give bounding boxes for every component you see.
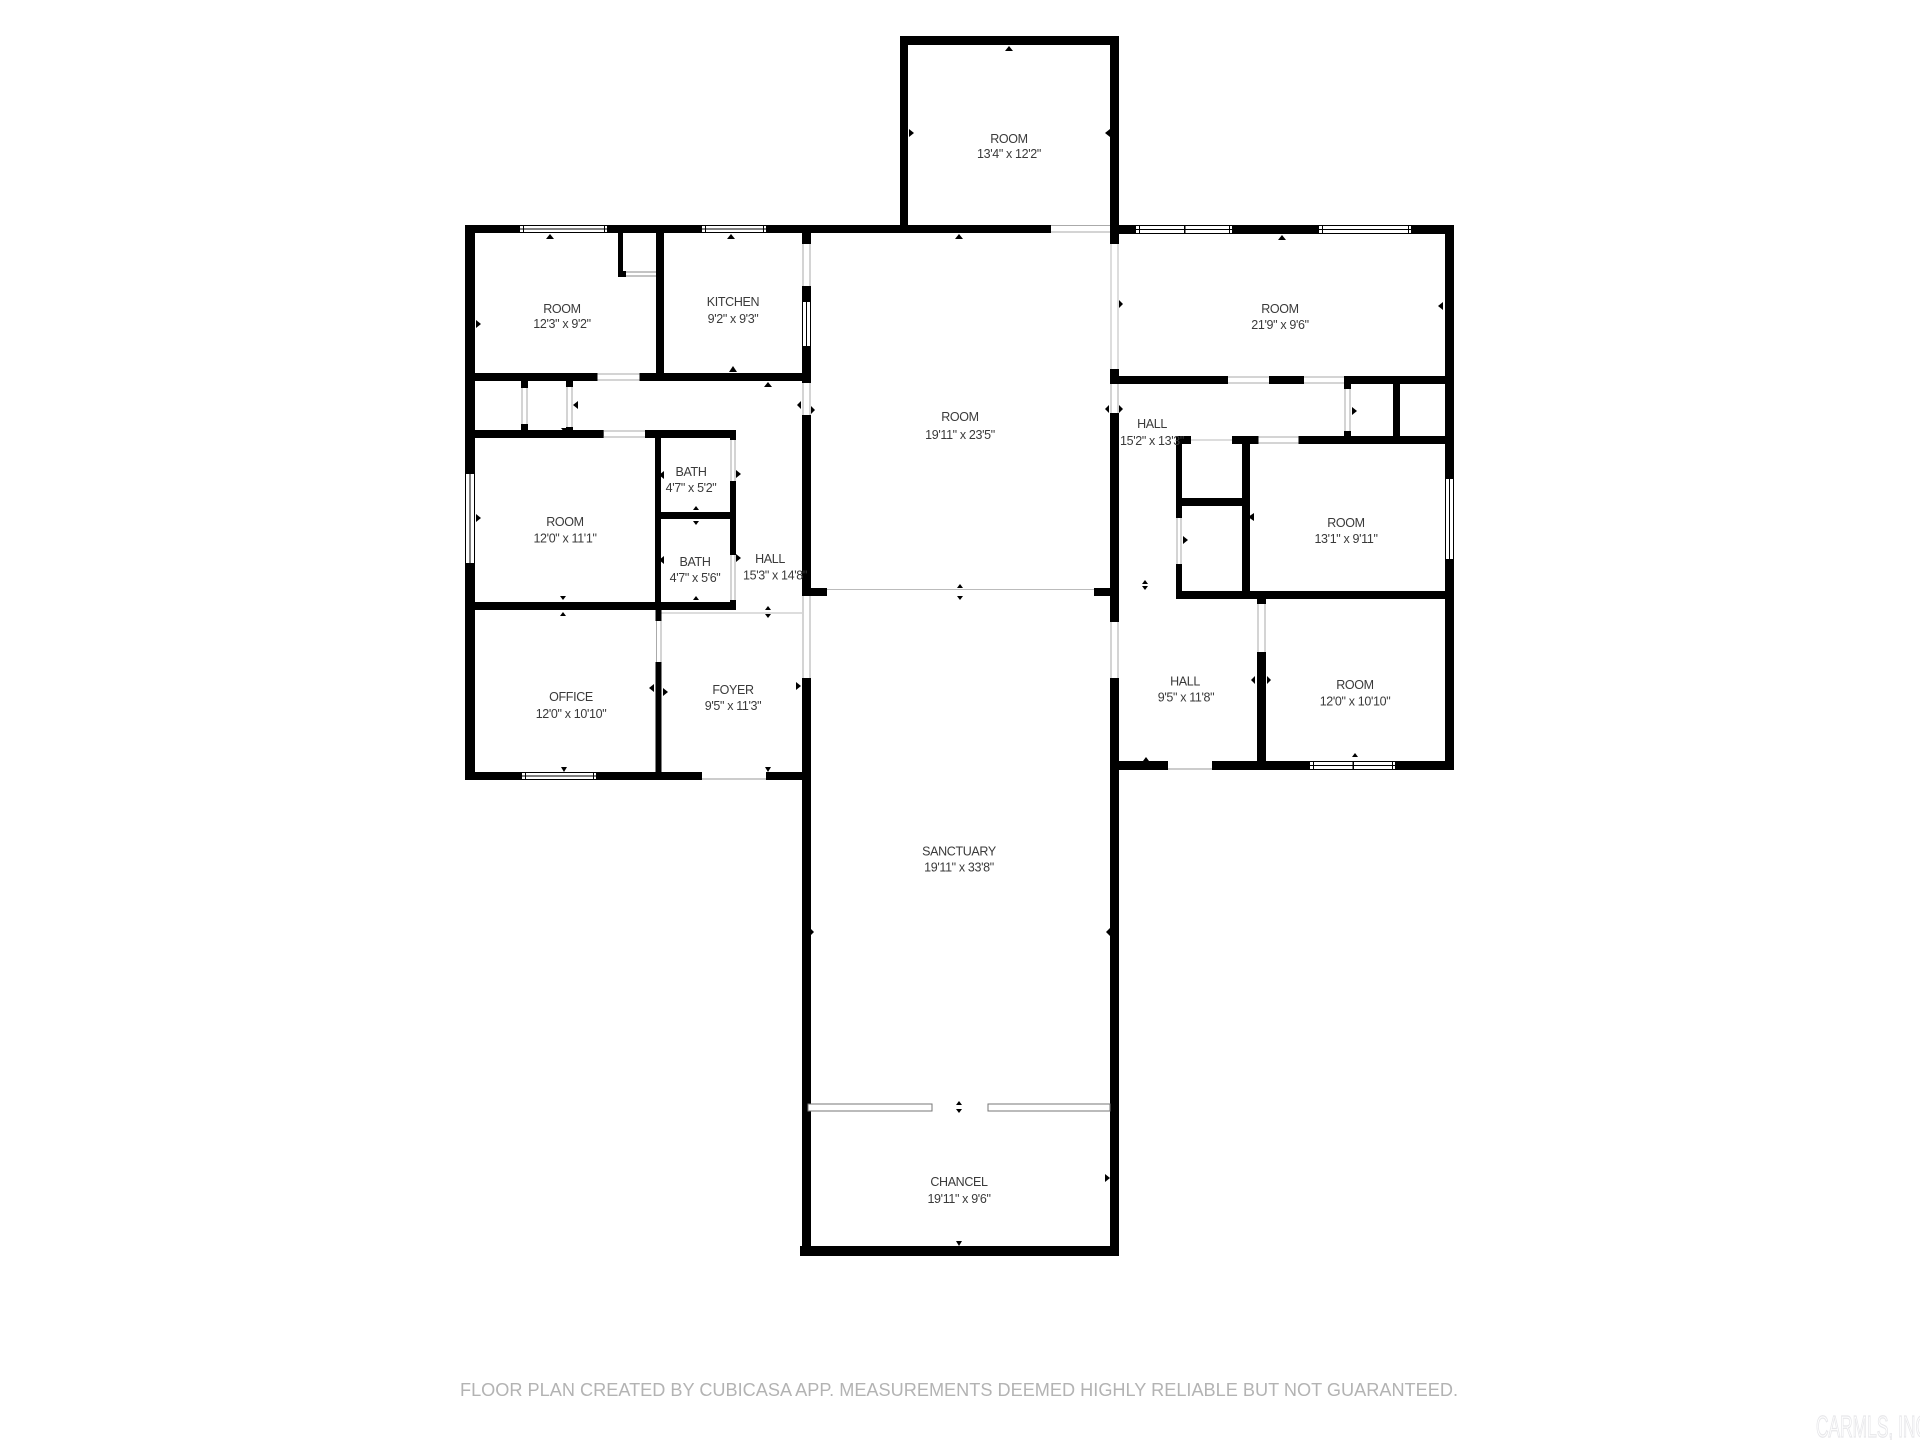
svg-text:KITCHEN: KITCHEN [707, 295, 760, 309]
svg-text:FOYER: FOYER [712, 683, 754, 697]
svg-text:12'0" x 11'1": 12'0" x 11'1" [533, 532, 596, 546]
svg-text:OFFICE: OFFICE [549, 690, 593, 704]
svg-text:ROOM: ROOM [1336, 678, 1374, 692]
svg-text:BATH: BATH [679, 555, 710, 569]
svg-text:12'3" x 9'2": 12'3" x 9'2" [533, 317, 590, 331]
svg-text:ROOM: ROOM [941, 410, 979, 424]
svg-text:12'0" x 10'10": 12'0" x 10'10" [536, 707, 607, 721]
svg-text:13'4" x 12'2": 13'4" x 12'2" [977, 147, 1041, 161]
svg-text:CHANCEL: CHANCEL [930, 1175, 988, 1189]
svg-text:HALL: HALL [755, 552, 785, 566]
svg-text:19'11" x 9'6": 19'11" x 9'6" [927, 1192, 990, 1206]
svg-text:15'3" x 14'8": 15'3" x 14'8" [743, 569, 807, 583]
svg-text:9'5" x 11'8": 9'5" x 11'8" [1158, 691, 1214, 705]
svg-text:19'11" x 23'5": 19'11" x 23'5" [925, 428, 995, 442]
svg-text:21'9" x 9'6": 21'9" x 9'6" [1251, 318, 1308, 332]
svg-text:HALL: HALL [1137, 417, 1167, 431]
svg-text:HALL: HALL [1170, 675, 1200, 689]
svg-text:BATH: BATH [675, 465, 706, 479]
svg-text:SANCTUARY: SANCTUARY [922, 845, 997, 859]
svg-text:ROOM: ROOM [543, 302, 581, 316]
svg-text:15'2" x 13'3": 15'2" x 13'3" [1120, 434, 1184, 448]
svg-text:9'2" x 9'3": 9'2" x 9'3" [708, 312, 759, 326]
svg-text:19'11" x 33'8": 19'11" x 33'8" [924, 861, 994, 875]
svg-text:CARMLS, INC: CARMLS, INC [1816, 1409, 1920, 1440]
svg-text:12'0" x 10'10": 12'0" x 10'10" [1320, 695, 1391, 709]
svg-text:FLOOR PLAN CREATED BY CUBICASA: FLOOR PLAN CREATED BY CUBICASA APP. MEAS… [460, 1379, 1458, 1400]
svg-text:ROOM: ROOM [990, 132, 1028, 146]
svg-text:9'5" x 11'3": 9'5" x 11'3" [705, 699, 761, 713]
svg-text:13'1" x 9'11": 13'1" x 9'11" [1314, 532, 1377, 546]
svg-text:4'7" x 5'6": 4'7" x 5'6" [670, 571, 721, 585]
svg-text:ROOM: ROOM [1261, 302, 1299, 316]
svg-text:ROOM: ROOM [1327, 516, 1365, 530]
svg-text:ROOM: ROOM [546, 515, 584, 529]
svg-text:4'7" x 5'2": 4'7" x 5'2" [666, 481, 717, 495]
